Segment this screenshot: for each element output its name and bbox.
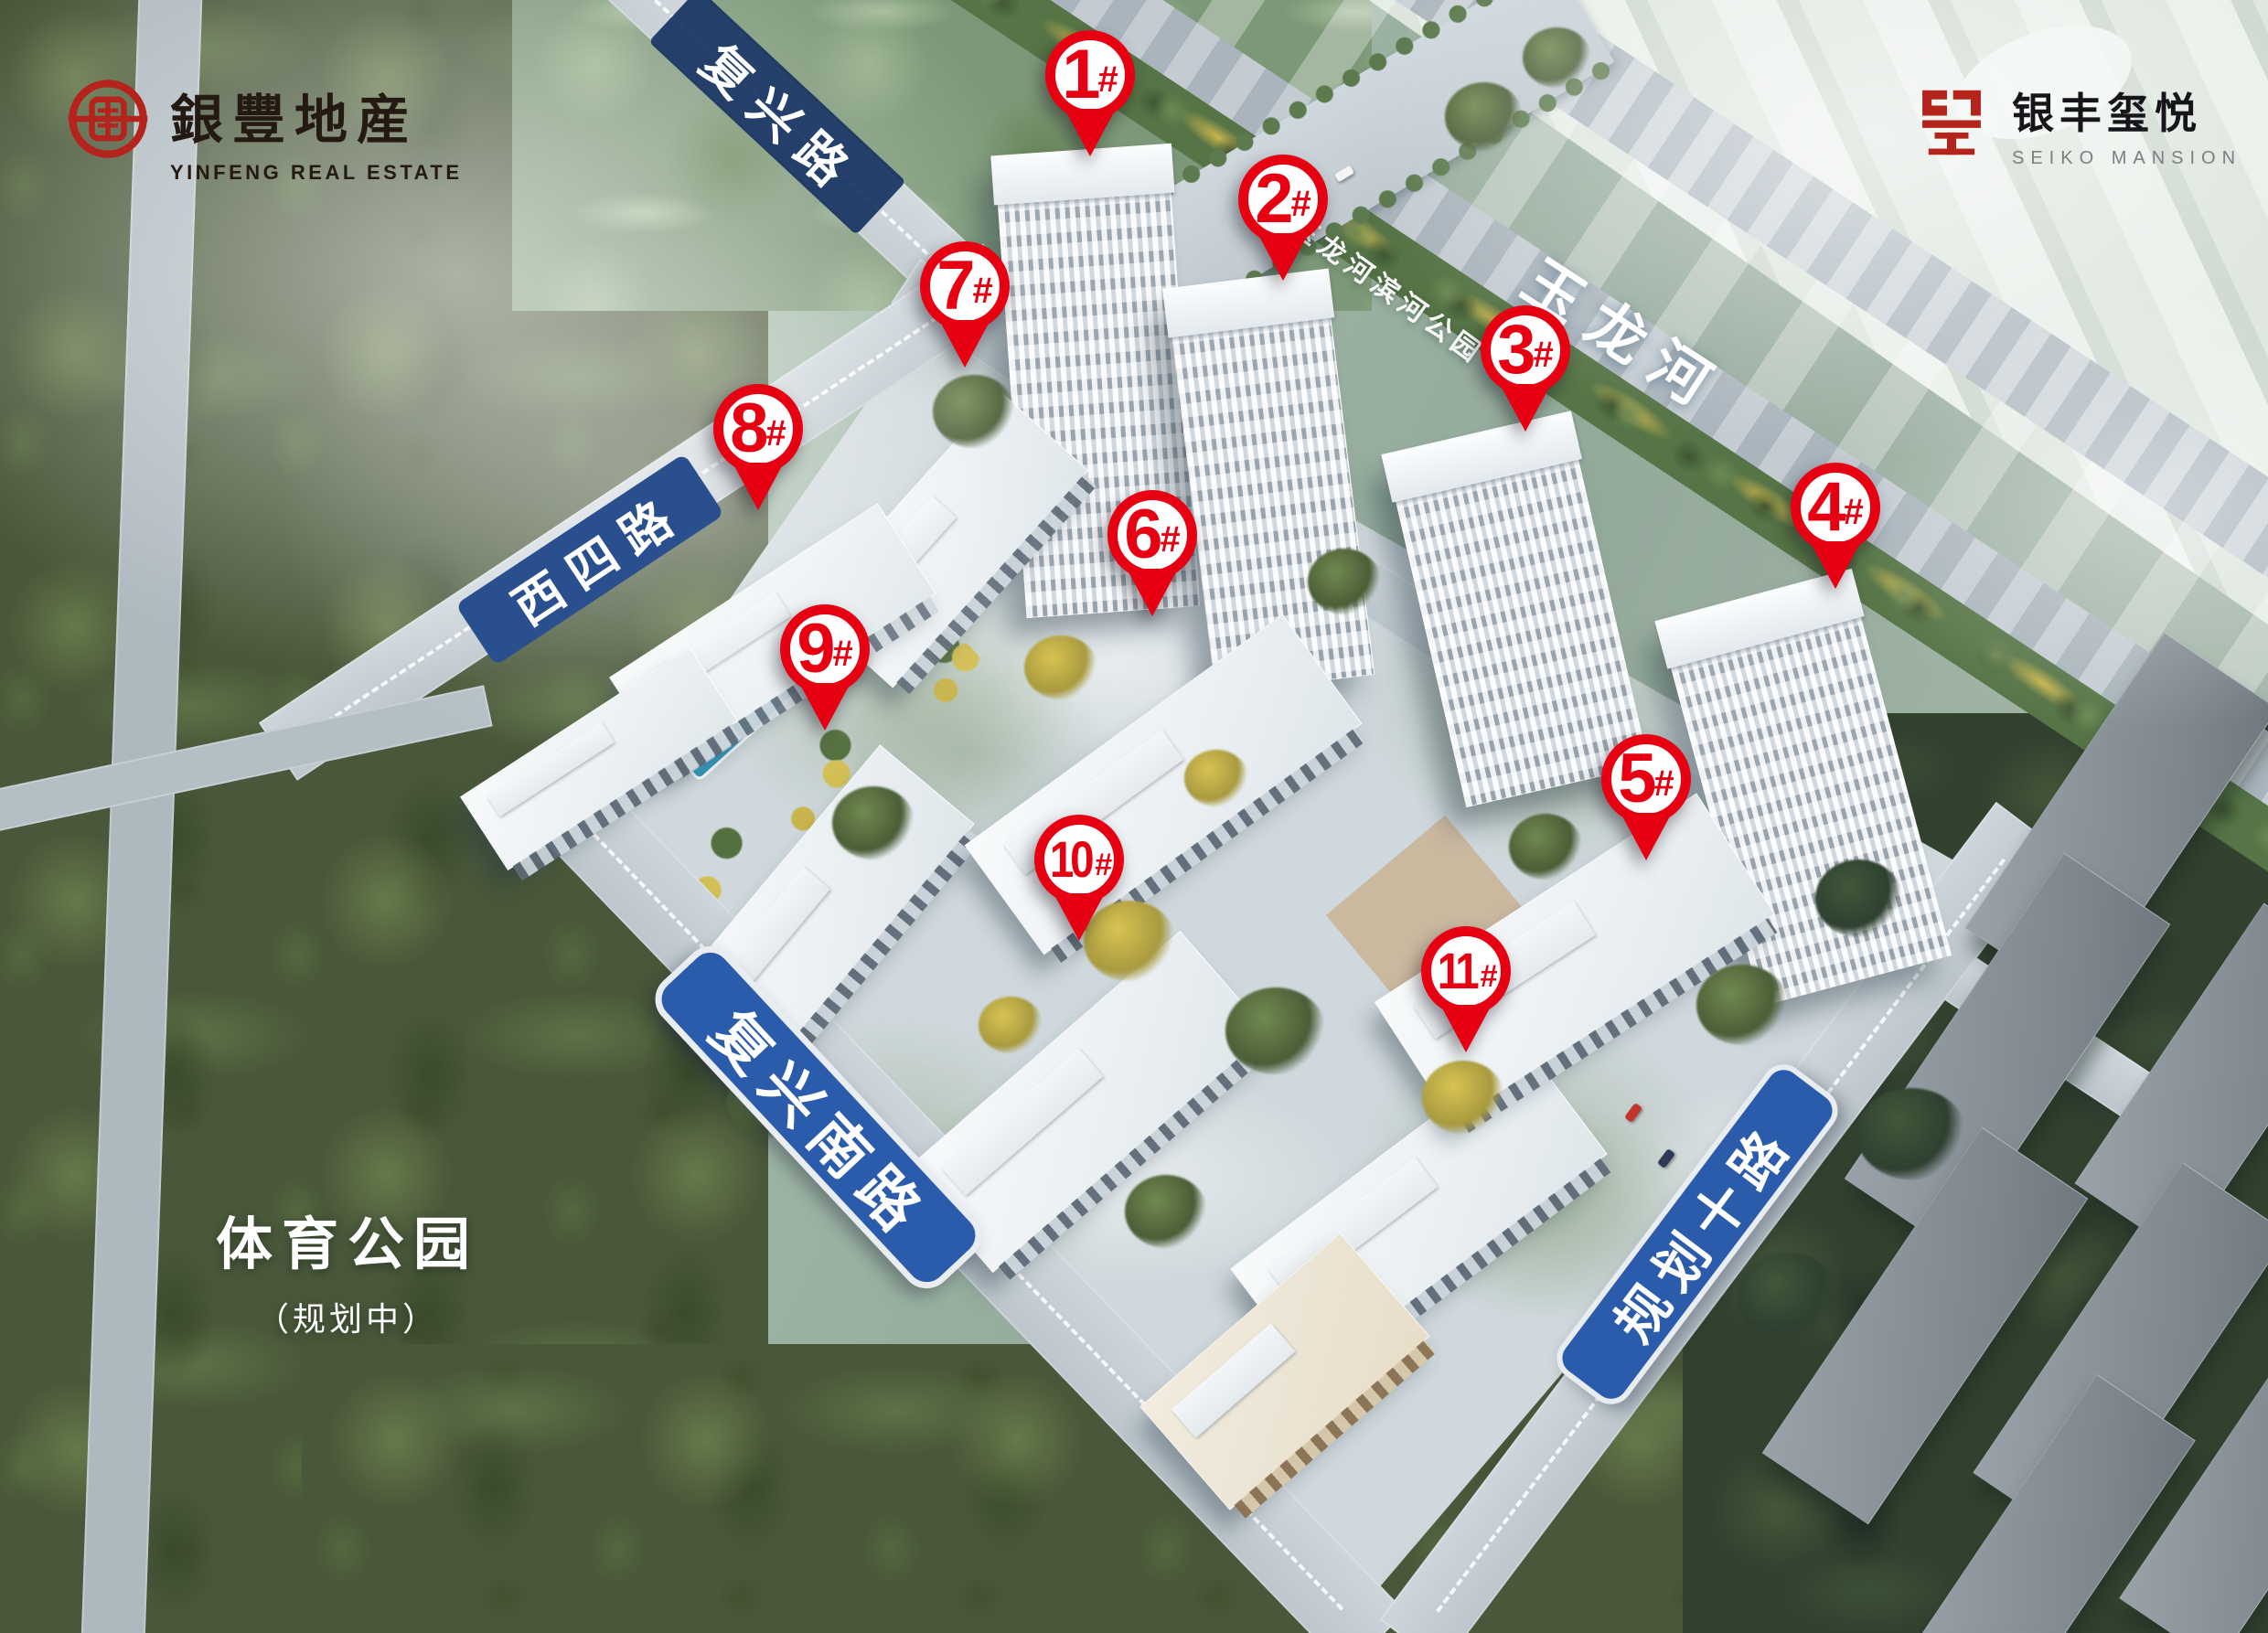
marker-hash: # [1534, 335, 1554, 376]
building-marker-9: 9# [772, 604, 878, 731]
marker-pin-icon: 6# [1107, 490, 1197, 580]
marker-tail [939, 320, 990, 368]
building-marker-5: 5# [1593, 734, 1699, 860]
sports-park-status: （规划中） [142, 1293, 553, 1340]
marker-pin-icon: 4# [1791, 463, 1880, 552]
project-name-cn: 银丰玺悦 [2012, 80, 2241, 141]
aerial-site-plan: 复兴路 西四路 复兴南路 规划十路 玉龙河 玉龙河滨河公园 体育公园 （规划中）… [0, 0, 2268, 1633]
tree-grove [1815, 859, 1902, 937]
marker-pin-icon: 9# [780, 604, 870, 694]
marker-pin-icon: 2# [1238, 155, 1328, 244]
tree-grove [1024, 635, 1097, 699]
marker-pin-icon: 7# [920, 241, 1010, 331]
marker-tail [1127, 569, 1178, 616]
marker-hash: # [1095, 848, 1112, 883]
marker-hash: # [1481, 959, 1498, 995]
marker-hash: # [973, 271, 993, 312]
yinfeng-seal-icon [66, 77, 150, 165]
building-marker-2: 2# [1230, 155, 1336, 281]
marker-number: 8 [730, 394, 765, 464]
developer-logo: 銀豐地産 YINFENG REAL ESTATE [66, 77, 463, 185]
building-marker-8: 8# [705, 384, 811, 510]
developer-name-en: YINFENG REAL ESTATE [170, 161, 463, 185]
marker-tail [1064, 109, 1116, 156]
sports-park-name: 体育公园 [142, 1198, 553, 1280]
tree-grove [1523, 27, 1591, 88]
building-marker-10: 10# [1026, 815, 1132, 941]
tree-grove [1445, 82, 1523, 151]
building-marker-11: 11# [1413, 926, 1519, 1052]
marker-pin-icon: 11# [1421, 926, 1511, 1016]
building-marker-4: 4# [1782, 463, 1888, 589]
marker-number: 5 [1618, 744, 1653, 814]
tree-grove [1856, 1088, 1966, 1179]
marker-pin-icon: 8# [713, 384, 803, 474]
tree-grove [1738, 1253, 1838, 1339]
marker-tail [733, 463, 784, 510]
marker-number: 9 [797, 614, 831, 684]
building-marker-3: 3# [1472, 305, 1578, 432]
marker-number: 11 [1438, 945, 1476, 997]
marker-number: 7 [936, 251, 971, 321]
marker-tail [1621, 813, 1672, 860]
tree-grove [1308, 549, 1381, 614]
marker-number: 4 [1807, 473, 1842, 542]
marker-number: 2 [1255, 165, 1289, 234]
tree-grove [979, 997, 1043, 1053]
developer-name-cn: 銀豐地産 [170, 77, 463, 154]
tree-grove [1509, 814, 1582, 880]
marker-tail [1500, 384, 1551, 432]
tree-grove [1225, 987, 1326, 1074]
marker-number: 10 [1050, 834, 1090, 885]
marker-tail [799, 683, 850, 731]
tree-grove [1422, 1061, 1504, 1134]
project-logo: 银丰玺悦 SEIKO MANSION [1913, 80, 2241, 169]
marker-pin-icon: 10# [1034, 815, 1124, 904]
marker-hash: # [1161, 519, 1181, 560]
building-marker-1: 1# [1037, 30, 1143, 156]
marker-hash: # [1291, 184, 1311, 225]
tree-grove [1696, 965, 1788, 1045]
building-marker-7: 7# [912, 241, 1018, 368]
marker-number: 6 [1124, 500, 1159, 570]
marker-pin-icon: 1# [1045, 30, 1135, 120]
marker-tail [1054, 893, 1105, 941]
marker-hash: # [766, 413, 786, 454]
marker-hash: # [1654, 763, 1674, 805]
marker-hash: # [833, 634, 853, 675]
marker-pin-icon: 5# [1601, 734, 1691, 824]
project-name-en: SEIKO MANSION [2012, 148, 2241, 169]
sports-park-label: 体育公园 （规划中） [142, 1198, 553, 1340]
marker-tail [1810, 541, 1861, 589]
marker-number: 3 [1497, 315, 1532, 385]
marker-tail [1440, 1005, 1492, 1052]
building-marker-6: 6# [1099, 490, 1205, 616]
xiyue-monogram-icon [1913, 84, 1990, 165]
tree-grove [832, 786, 915, 859]
tree-grove [1125, 1175, 1207, 1248]
marker-tail [1257, 233, 1309, 281]
marker-hash: # [1098, 59, 1118, 101]
marker-pin-icon: 3# [1481, 305, 1570, 395]
marker-number: 1 [1062, 40, 1097, 110]
marker-hash: # [1844, 492, 1864, 533]
tree-grove [1184, 750, 1248, 806]
tree-grove [933, 375, 1015, 448]
